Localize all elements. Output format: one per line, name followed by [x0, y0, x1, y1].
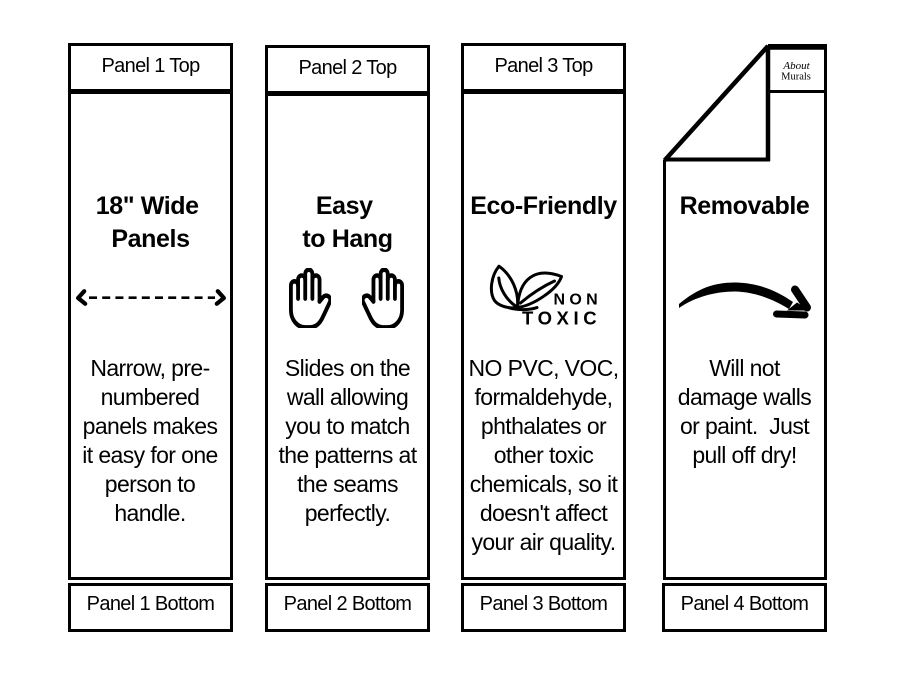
- svg-text:TOXIC: TOXIC: [522, 308, 601, 329]
- svg-text:Murals: Murals: [781, 71, 811, 82]
- svg-text:NON: NON: [554, 292, 602, 309]
- svg-text:About: About: [782, 60, 810, 72]
